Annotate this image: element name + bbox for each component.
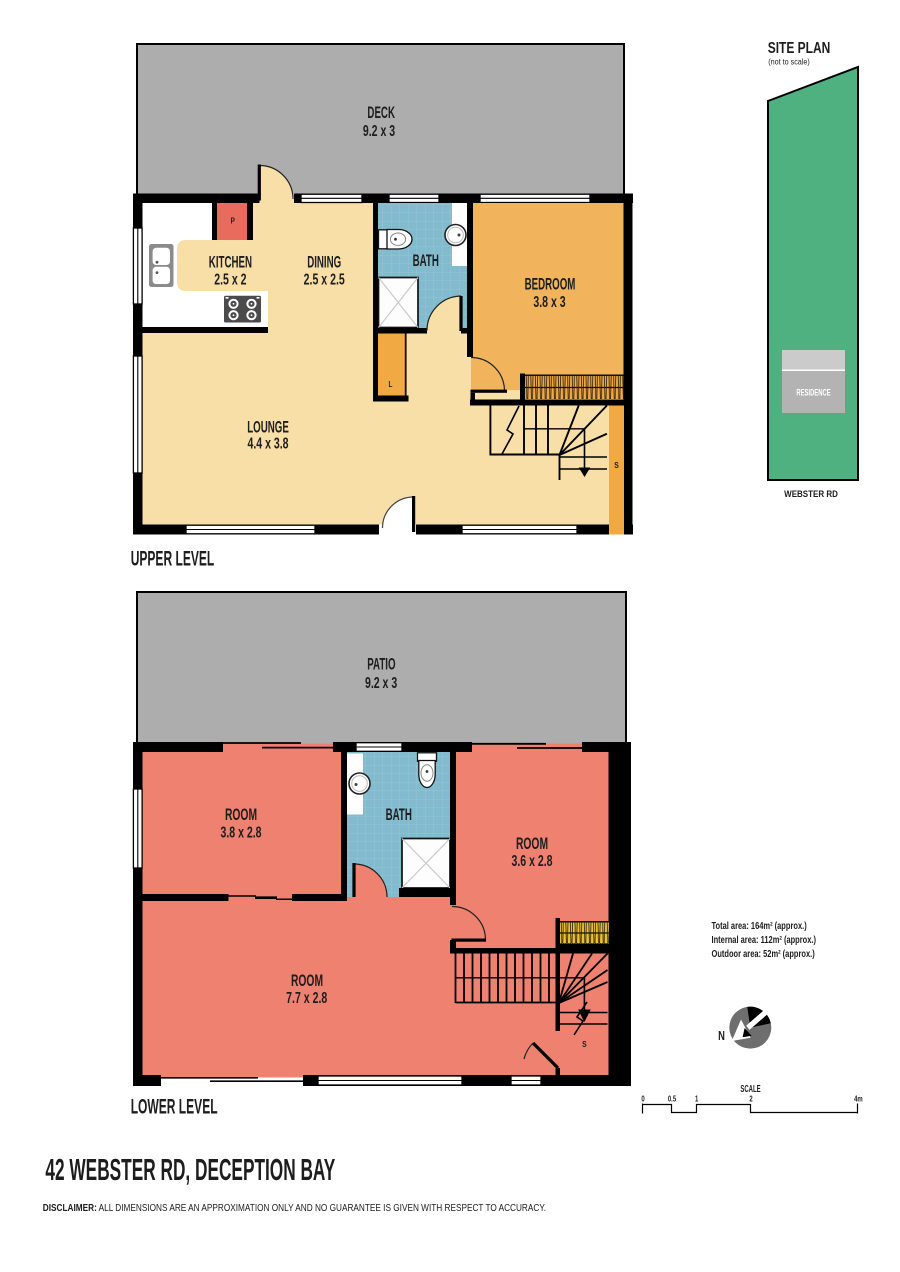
svg-text:N: N bbox=[718, 1030, 725, 1044]
svg-text:ROOM: ROOM bbox=[225, 806, 257, 824]
svg-text:S: S bbox=[582, 1039, 587, 1049]
svg-text:PATIO: PATIO bbox=[367, 655, 395, 673]
svg-text:4m: 4m bbox=[854, 1093, 863, 1103]
svg-text:9.2 x 3: 9.2 x 3 bbox=[365, 674, 398, 692]
svg-text:SITE PLAN: SITE PLAN bbox=[768, 38, 831, 56]
svg-text:BEDROOM: BEDROOM bbox=[525, 275, 576, 293]
svg-text:3.6 x 2.8: 3.6 x 2.8 bbox=[511, 852, 552, 870]
svg-text:2: 2 bbox=[749, 1093, 752, 1103]
svg-text:Total area: 164m² (approx.): Total area: 164m² (approx.) bbox=[712, 920, 807, 931]
svg-text:RESIDENCE: RESIDENCE bbox=[796, 387, 830, 398]
svg-text:DECK: DECK bbox=[367, 103, 395, 121]
svg-text:7.7 x 2.8: 7.7 x 2.8 bbox=[286, 989, 327, 1007]
svg-text:L: L bbox=[389, 379, 393, 389]
svg-text:(not to scale): (not to scale) bbox=[768, 57, 810, 66]
svg-text:2.5 x 2.5: 2.5 x 2.5 bbox=[304, 270, 345, 288]
svg-text:P: P bbox=[231, 216, 235, 226]
svg-text:3.8 x 3: 3.8 x 3 bbox=[533, 293, 566, 311]
svg-text:1: 1 bbox=[695, 1093, 698, 1103]
svg-text:9.2 x 3: 9.2 x 3 bbox=[363, 122, 396, 140]
svg-text:BATH: BATH bbox=[386, 805, 412, 823]
svg-text:LOWER LEVEL: LOWER LEVEL bbox=[131, 1094, 218, 1119]
svg-text:3.8 x 2.8: 3.8 x 2.8 bbox=[220, 823, 261, 841]
svg-text:ROOM: ROOM bbox=[291, 971, 323, 989]
svg-text:ROOM: ROOM bbox=[516, 834, 548, 852]
svg-text:Internal area: 112m² (approx.): Internal area: 112m² (approx.) bbox=[712, 934, 817, 945]
svg-text:BATH: BATH bbox=[413, 251, 439, 269]
svg-text:DINING: DINING bbox=[307, 253, 341, 271]
svg-text:2.5 x 2: 2.5 x 2 bbox=[214, 270, 246, 288]
svg-text:Outdoor area: 52m² (approx.): Outdoor area: 52m² (approx.) bbox=[712, 948, 815, 959]
svg-text:UPPER LEVEL: UPPER LEVEL bbox=[131, 546, 215, 571]
svg-text:KITCHEN: KITCHEN bbox=[209, 253, 252, 271]
svg-text:WEBSTER RD: WEBSTER RD bbox=[784, 489, 838, 500]
svg-text:0.5: 0.5 bbox=[668, 1093, 676, 1103]
svg-text:S: S bbox=[614, 460, 619, 470]
svg-text:DISCLAIMER: ALL DIMENSIONS ARE: DISCLAIMER: ALL DIMENSIONS ARE AN APPROX… bbox=[43, 1202, 546, 1213]
svg-text:42 WEBSTER RD, DECEPTION BAY: 42 WEBSTER RD, DECEPTION BAY bbox=[45, 1153, 335, 1188]
svg-text:0: 0 bbox=[641, 1093, 644, 1103]
svg-text:4.4 x 3.8: 4.4 x 3.8 bbox=[247, 434, 288, 452]
